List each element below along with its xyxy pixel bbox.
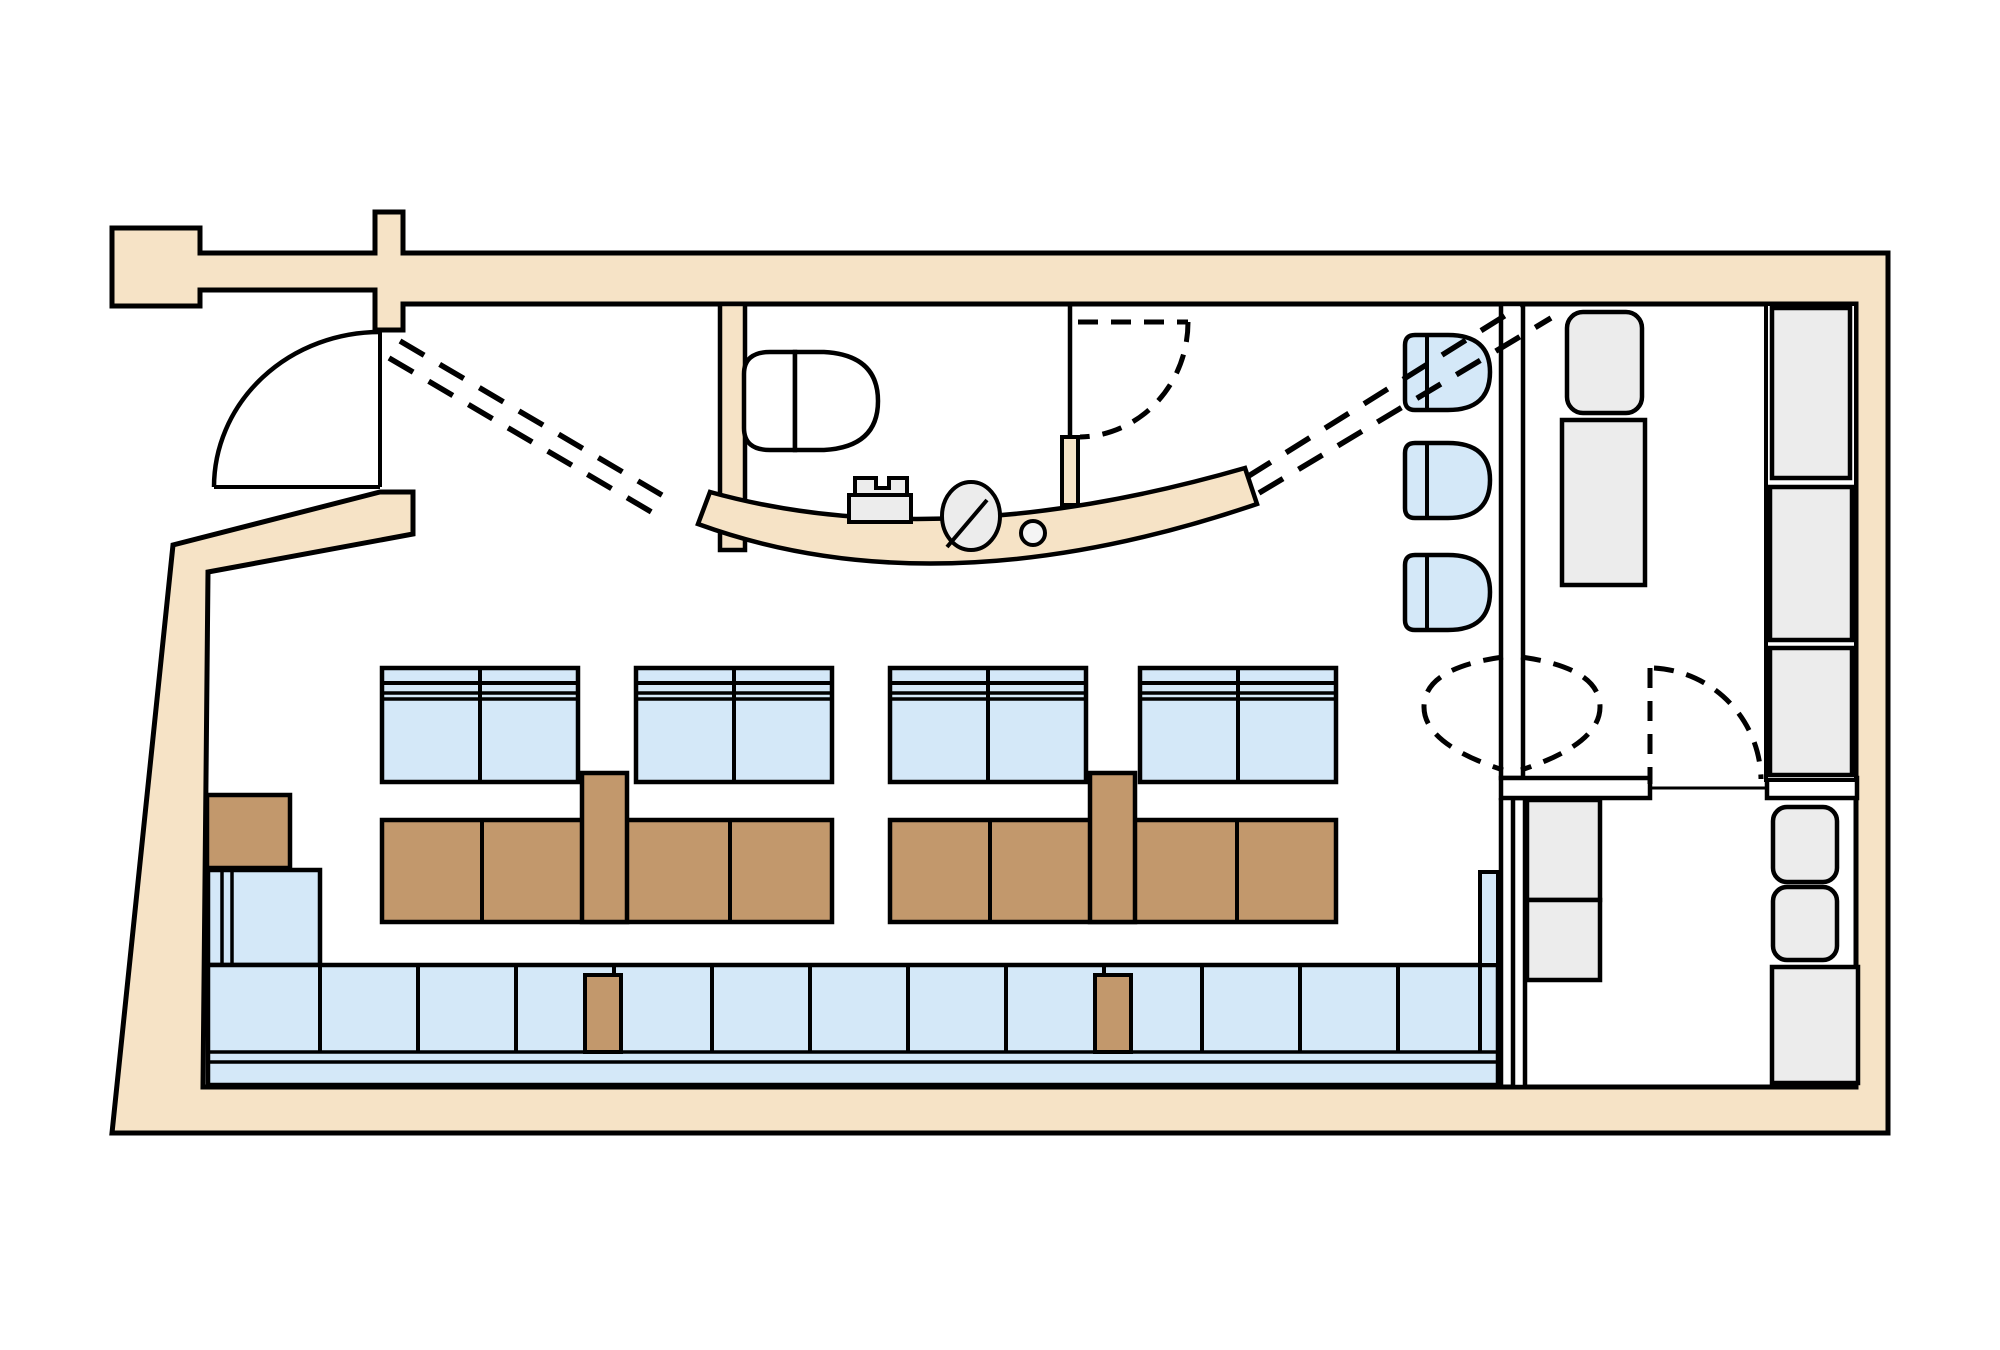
- bench-end-seat: [1480, 872, 1498, 965]
- shelf-unit-1: [1772, 308, 1850, 478]
- register-top: [855, 478, 907, 495]
- back-door-arc-dashed: [1654, 668, 1761, 779]
- table-pillar-1: [582, 773, 627, 922]
- swing-door-right-petal: [1521, 657, 1600, 770]
- bench-horizontal: [208, 965, 1498, 1085]
- toilet-bowl: [795, 352, 878, 450]
- toilet-door-jamb: [1062, 437, 1078, 505]
- tub-chair-2: [1405, 443, 1490, 518]
- shelf-unit-3: [1770, 648, 1852, 775]
- kitchen-counter: [1772, 967, 1858, 1083]
- drain-circle: [1021, 521, 1045, 545]
- route-dashed-left-b: [389, 358, 660, 517]
- tub-chair-3: [1405, 555, 1490, 630]
- kitchen-appliance-2: [1773, 887, 1837, 960]
- kitchen-cabinet-1: [1527, 800, 1600, 900]
- bench-pillar-2: [1095, 975, 1131, 1052]
- wall-cap-left: [1501, 778, 1650, 798]
- side-table: [207, 795, 290, 868]
- route-dashed-left-a: [400, 341, 672, 501]
- kitchen-appliance-1: [1773, 807, 1837, 882]
- kitchen-cabinet-2: [1527, 900, 1600, 980]
- floorplan-canvas: [0, 0, 2000, 1350]
- swing-door-left-petal: [1424, 657, 1503, 770]
- partition-wall-upper: [1501, 304, 1523, 778]
- entry-door-arc: [214, 332, 380, 487]
- floorplan-svg: [0, 0, 2000, 1350]
- table-pillar-2: [1090, 773, 1135, 922]
- toilet-tank: [744, 352, 795, 450]
- bench-pillar-1: [585, 975, 621, 1052]
- bench-vertical: [208, 870, 320, 965]
- register-base: [849, 495, 911, 522]
- partition-wall-lower: [1513, 798, 1525, 1087]
- toilet-door-arc-dashed: [1080, 322, 1188, 437]
- storage-table: [1562, 420, 1645, 585]
- storage-chair: [1567, 312, 1642, 413]
- shelf-unit-2: [1770, 487, 1852, 640]
